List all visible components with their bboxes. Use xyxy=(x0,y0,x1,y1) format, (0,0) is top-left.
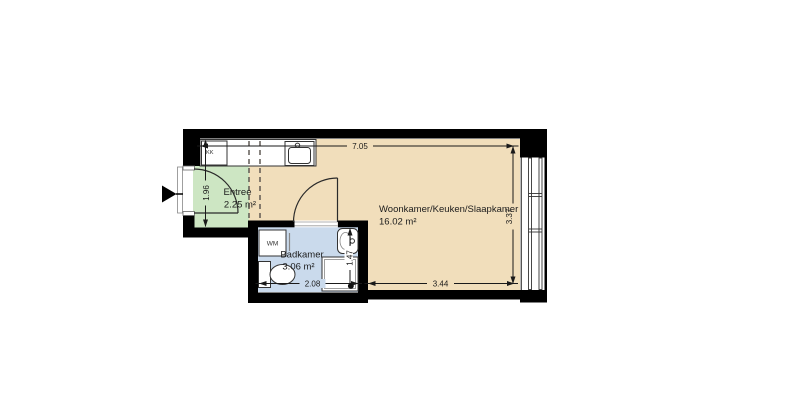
room-area-living: 16.02 m² xyxy=(379,217,417,228)
entrance-arrow-icon xyxy=(162,186,177,203)
dimension-label: 3.44 xyxy=(433,280,449,289)
wall-entree-bottom xyxy=(183,228,258,238)
wall-top xyxy=(183,129,547,139)
window-frame-outer xyxy=(539,158,542,290)
room-area-badkamer: 3.06 m² xyxy=(282,262,314,273)
wall-badkamer-left xyxy=(248,221,258,304)
wall-right-outer-line xyxy=(545,129,548,303)
kitchen-tap-icon xyxy=(295,143,299,147)
wall-badkamer-top-left xyxy=(258,221,295,228)
room-label-entree: Entree xyxy=(224,187,252,198)
washing-machine-label: WM xyxy=(267,241,279,248)
kitchen-sink-basin xyxy=(289,148,311,164)
kitchen-unit-label: KK xyxy=(206,150,214,156)
wall-right-top-corner xyxy=(520,129,547,158)
dimension-end-dot xyxy=(348,283,353,288)
washbasin-tap-icon xyxy=(350,239,354,243)
floor-plan-page: 7.05 1.96 3.37 3.44 2.08 1.47 xyxy=(0,0,800,417)
entrance-door-jamb-top xyxy=(183,166,195,170)
wall-right-bottom-corner xyxy=(520,290,547,303)
dimension-label: 1.47 xyxy=(346,250,355,266)
dimension-label: 1.96 xyxy=(202,185,211,201)
wall-badkamer-bottom xyxy=(248,293,368,304)
floor-plan-drawing: 7.05 1.96 3.37 3.44 2.08 1.47 xyxy=(0,0,800,417)
wall-top-left-block xyxy=(183,129,200,166)
dimension-label: 7.05 xyxy=(352,142,368,151)
badkamer-door-threshold xyxy=(295,221,338,228)
wall-bottom xyxy=(358,290,547,300)
entrance-door-outer-frame xyxy=(178,167,183,213)
room-label-living: Woonkamer/Keuken/Slaapkamer xyxy=(379,204,518,215)
room-label-badkamer: Badkamer xyxy=(280,250,323,261)
window xyxy=(521,158,544,291)
room-area-entree: 2.25 m² xyxy=(224,200,256,211)
window-frame-inner xyxy=(529,158,532,290)
entrance-door-jamb-bottom xyxy=(183,212,195,216)
kitchen-counter xyxy=(200,140,316,167)
dimension-label: 2.08 xyxy=(305,280,321,289)
